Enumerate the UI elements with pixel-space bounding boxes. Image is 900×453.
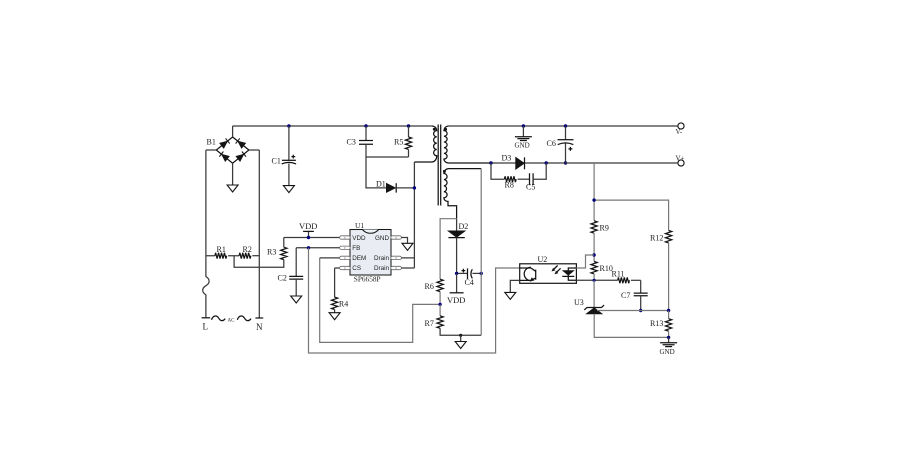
svg-text:C1: C1 — [272, 157, 281, 166]
svg-text:GND: GND — [375, 235, 389, 242]
svg-text:R4: R4 — [339, 300, 348, 309]
svg-text:V-: V- — [676, 128, 683, 136]
svg-text:C6: C6 — [547, 139, 556, 148]
svg-text:R1: R1 — [217, 245, 226, 254]
svg-text:C5: C5 — [526, 183, 535, 192]
svg-text:VDD: VDD — [447, 295, 465, 305]
svg-text:R5: R5 — [394, 138, 403, 147]
svg-text:L: L — [203, 322, 209, 332]
svg-text:AC: AC — [228, 319, 236, 324]
svg-text:R7: R7 — [425, 319, 434, 328]
svg-text:R12: R12 — [650, 234, 663, 243]
svg-text:V+: V+ — [676, 154, 685, 162]
svg-text:C3: C3 — [347, 138, 356, 147]
svg-text:R2: R2 — [243, 245, 252, 254]
svg-text:U1: U1 — [355, 221, 364, 230]
svg-text:CS: CS — [352, 265, 361, 272]
svg-text:R13: R13 — [650, 319, 663, 328]
svg-text:N: N — [256, 322, 263, 332]
svg-text:R8: R8 — [505, 180, 514, 189]
svg-text:GND: GND — [660, 348, 675, 356]
svg-text:R9: R9 — [600, 224, 609, 233]
svg-text:FB: FB — [352, 245, 360, 252]
svg-text:D2: D2 — [459, 222, 469, 231]
svg-text:U3: U3 — [574, 298, 584, 307]
svg-text:Drain: Drain — [374, 255, 390, 262]
svg-text:U2: U2 — [538, 255, 548, 264]
svg-text:VDD: VDD — [352, 235, 366, 242]
svg-text:GND: GND — [515, 142, 530, 150]
svg-text:D3: D3 — [502, 154, 512, 163]
svg-text:C7: C7 — [621, 291, 630, 300]
svg-text:B1: B1 — [207, 138, 216, 147]
svg-text:R3: R3 — [267, 248, 276, 257]
svg-text:DEM: DEM — [352, 255, 366, 262]
svg-text:Drain: Drain — [374, 265, 390, 272]
svg-text:R6: R6 — [425, 282, 434, 291]
svg-text:C4: C4 — [465, 278, 474, 287]
svg-text:R11: R11 — [612, 270, 625, 279]
svg-text:C2: C2 — [278, 274, 287, 283]
svg-text:VDD: VDD — [299, 221, 317, 231]
svg-text:SP6658P: SP6658P — [354, 274, 381, 283]
svg-text:D1: D1 — [376, 180, 386, 189]
